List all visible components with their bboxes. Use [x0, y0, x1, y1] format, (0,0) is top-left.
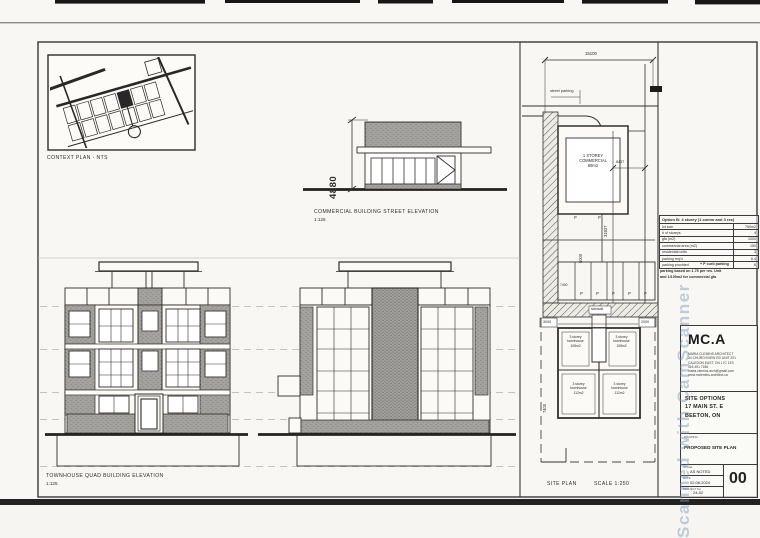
commercial-elevation-scale: 1:125: [314, 217, 326, 222]
parking-mark: P: [596, 291, 599, 296]
dim-side-left: 3000: [543, 320, 551, 324]
dim-commercial-depth: 8437: [616, 160, 624, 164]
parking-mark: P: [612, 291, 615, 296]
unit-label: 3 storeytownhouse112m2: [602, 382, 637, 395]
camscanner-watermark: Scanned with CamScanner: [674, 283, 694, 538]
context-plan-map: [42, 38, 208, 162]
dim-rear-yard: 7400: [542, 404, 547, 413]
townhouse-elevation-caption: TOWNHOUSE QUAD BUILDING ELEVATION: [46, 473, 164, 479]
divider: [723, 464, 724, 497]
sheet-linework: [0, 0, 760, 505]
sidewalk-label: sidewalk: [591, 307, 603, 311]
option-table-title: Option B: 4 storey (1 comm and 3 res): [660, 216, 758, 224]
commercial-elevation-caption: COMMERCIAL BUILDING STREET ELEVATION: [314, 209, 439, 215]
townhouse-side-elevation-drawing: [258, 262, 516, 466]
parking-mark: P: [644, 291, 647, 296]
option-table: Option B: 4 storey (1 comm and 3 res) lo…: [659, 215, 759, 269]
commercial-height-dimension: 4880: [328, 176, 339, 199]
parking-mark: P: [628, 291, 631, 296]
unit-label: 3 storeytownhouse108m2: [560, 335, 591, 348]
parking-basis-note: parking based on 1.75 per res. Unit: [660, 269, 721, 273]
context-plan-caption: CONTEXT PLAN - NTS: [47, 155, 108, 161]
dim-courtyard: 6000: [578, 254, 583, 263]
dim-frontage: 15100: [585, 51, 597, 56]
dim-depth: 31937: [603, 226, 608, 237]
parking-mark: P: [580, 291, 583, 296]
firm-info: MARIA CLEMINS ARCHITECT 34 CHURCHVIEW RD…: [688, 352, 736, 378]
site-plan-drawing: [522, 57, 662, 462]
sheet-number: 00: [729, 470, 747, 488]
commercial-building-label: 1 STOREY COMMERCIAL 89m2: [566, 153, 620, 168]
parking-mark: P: [574, 215, 577, 220]
unit-label: 3 storeytownhouse112m2: [561, 382, 596, 395]
parking-mark: P: [598, 215, 601, 220]
street-parking-label: street parking: [550, 88, 574, 93]
drawing-sheet: CONTEXT PLAN - NTS COMMERCIAL BUILDING S…: [0, 0, 760, 505]
curb-parking-note: + P curb parking: [700, 262, 729, 266]
dim-aisle: 7400: [560, 283, 568, 287]
parking-basis-note: and 1/100m2 for commercial gfa: [660, 275, 716, 279]
site-plan-caption: SITE PLAN: [547, 481, 577, 487]
dim-side-right: 2000: [641, 320, 649, 324]
site-plan-scale: SCALE 1:250: [594, 481, 629, 487]
townhouse-elevation-scale: 1:125: [46, 481, 58, 486]
project-number-value: 24-02: [693, 490, 703, 495]
townhouse-front-elevation-drawing: [45, 262, 248, 466]
unit-label: 3 storeytownhouse108m2: [606, 335, 637, 348]
